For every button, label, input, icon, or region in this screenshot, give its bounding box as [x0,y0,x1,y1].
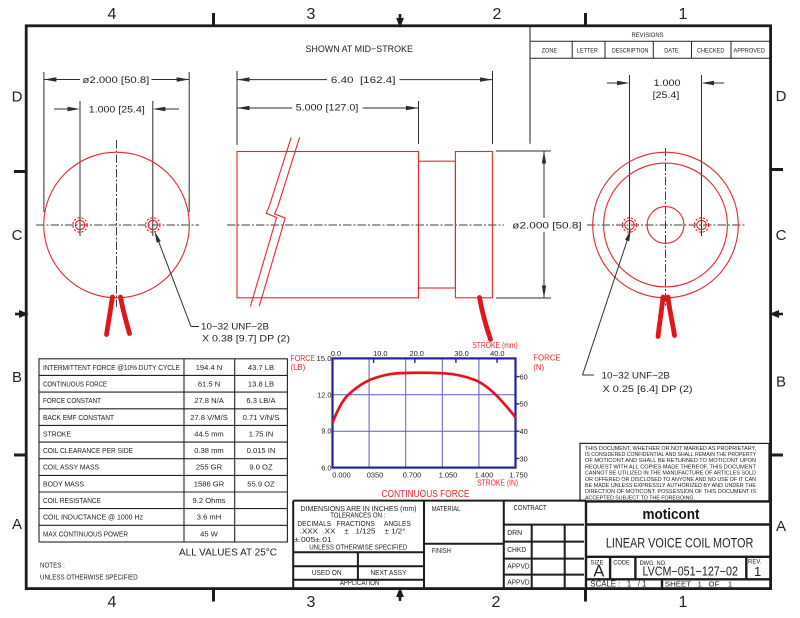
svg-text:CONTINUOUS FORCE: CONTINUOUS FORCE [382,489,470,500]
svg-text:1: 1 [679,6,688,23]
svg-text:3.6 mH: 3.6 mH [197,513,221,522]
svg-text:NEXT ASSY: NEXT ASSY [370,568,406,577]
svg-text:CONTINUOUS FORCE: CONTINUOUS FORCE [43,379,107,388]
svg-text:B: B [776,374,786,391]
svg-text:CODE: CODE [613,560,630,567]
svg-text:COIL ASSY MASS: COIL ASSY MASS [43,463,99,472]
svg-text:COIL INDUCTANCE @ 1000 Hz: COIL INDUCTANCE @ 1000 Hz [43,513,143,522]
svg-text:30.0: 30.0 [454,349,468,358]
svg-text:D: D [776,88,787,105]
svg-text:5.000 [127.0]: 5.000 [127.0] [296,103,359,113]
svg-text:FORCE: FORCE [533,354,560,363]
svg-text:12.0: 12.0 [317,391,331,400]
svg-text:[25.4]: [25.4] [653,90,680,100]
svg-text:1586 GR: 1586 GR [194,479,225,488]
svg-text:1: 1 [754,564,761,579]
svg-text:CHKD: CHKD [507,545,526,554]
svg-text:1.000: 1.000 [654,78,681,88]
svg-text:0.000: 0.000 [332,471,351,480]
svg-text:0.0: 0.0 [331,349,341,358]
svg-text:NOTES :: NOTES : [40,561,65,570]
svg-text:A: A [776,518,786,535]
svg-text:6.0: 6.0 [321,463,331,472]
svg-text:REQUEST WITH ALL COPIES MADE T: REQUEST WITH ALL COPIES MADE THEREOF. TH… [585,464,756,470]
svg-text:13.8 LB: 13.8 LB [248,379,274,388]
svg-text:DRN: DRN [507,528,522,537]
svg-text:SHOWN AT MID−STROKE: SHOWN AT MID−STROKE [305,44,413,54]
svg-text:4: 4 [108,594,117,611]
svg-text:27.8 V/M/S: 27.8 V/M/S [190,413,228,422]
svg-text:40: 40 [520,427,528,436]
svg-text:REVISIONS: REVISIONS [632,32,665,39]
svg-text:A: A [593,563,604,581]
svg-text:ALL VALUES AT 25°C: ALL VALUES AT 25°C [179,548,277,559]
svg-text:FORCE CONSTANT: FORCE CONSTANT [43,396,101,405]
svg-text:C: C [776,227,787,244]
svg-text:2: 2 [493,6,502,23]
svg-text:STROKE: STROKE [43,429,71,438]
svg-text:ø2.000 [50.8]: ø2.000 [50.8] [83,75,150,85]
svg-text:OR OFFERED OR DISCLOSED TO ANY: OR OFFERED OR DISCLOSED TO ANYONE AND NO… [585,477,756,483]
svg-text:APPROVED: APPROVED [733,48,765,55]
svg-text:SHEET 1 OF 1: SHEET 1 OF 1 [665,580,732,589]
svg-text:6.3 LB/A: 6.3 LB/A [246,396,276,405]
svg-text:1.000 [25.4]: 1.000 [25.4] [89,104,145,114]
svg-text:45 W: 45 W [200,529,219,538]
svg-text:0350: 0350 [367,471,383,480]
svg-text:BACK EMF CONSTANT: BACK EMF CONSTANT [43,413,114,422]
svg-text:FORCE: FORCE [291,354,316,363]
svg-text:61.5 N: 61.5 N [198,379,220,388]
svg-text:0.38 mm: 0.38 mm [194,446,224,455]
svg-text:LINEAR VOICE COIL MOTOR: LINEAR VOICE COIL MOTOR [606,536,754,551]
svg-text:STROKE (mm): STROKE (mm) [472,341,518,350]
svg-text:USED ON: USED ON [312,568,342,577]
svg-text:0.015 IN: 0.015 IN [247,446,276,455]
svg-text:MATERIAL: MATERIAL [432,504,461,513]
svg-text:4: 4 [108,6,117,23]
svg-text:194.4 N: 194.4 N [196,363,223,372]
svg-text:9.0: 9.0 [321,427,331,436]
svg-text:1.050: 1.050 [439,471,458,480]
svg-text:OF MOTICONT AND SHALL BE RETUR: OF MOTICONT AND SHALL BE RETURNED TO MOT… [585,458,756,464]
svg-text:A: A [12,516,22,533]
svg-text:APPLICATION: APPLICATION [340,578,379,587]
svg-text:2: 2 [492,594,501,611]
svg-text:COIL RESISTANCE: COIL RESISTANCE [43,496,101,505]
svg-text:DATE: DATE [664,48,679,55]
svg-text:DIRECTION OF MOTICONT. POSSESS: DIRECTION OF MOTICONT. POSSESSION OF THI… [585,489,756,495]
svg-text:CANNOT BE UTILIZED IN THE MANU: CANNOT BE UTILIZED IN THE MANUFACTURE OF… [585,471,756,477]
svg-text:STROKE (IN): STROKE (IN) [477,479,518,488]
svg-text:(N): (N) [533,363,544,372]
svg-text:20.0: 20.0 [410,349,424,358]
svg-text:APPVD: APPVD [507,561,530,570]
svg-text:1.75 IN: 1.75 IN [249,429,273,438]
svg-text:LETTER: LETTER [577,48,598,55]
svg-text:10−32 UNF−2B: 10−32 UNF−2B [201,321,269,331]
svg-text:0.700: 0.700 [403,471,422,480]
svg-text:CHECKED: CHECKED [697,48,725,55]
svg-text:moticont: moticont [643,507,700,523]
svg-text:1: 1 [679,594,688,611]
svg-text:ø2.000 [50.8]: ø2.000 [50.8] [512,220,581,230]
svg-text:40.0: 40.0 [490,349,504,358]
svg-text:50: 50 [520,400,528,409]
svg-text:DESCRIPTION: DESCRIPTION [612,48,649,55]
svg-text:(LB): (LB) [291,363,306,372]
svg-text:15.0: 15.0 [317,354,332,363]
svg-text:FINISH: FINISH [432,546,451,555]
svg-text:60: 60 [520,372,528,381]
svg-text:INTERMITTENT FORCE @10% DUTY C: INTERMITTENT FORCE @10% DUTY CYCLE [43,363,180,372]
svg-text:3: 3 [307,6,316,23]
svg-text:MAX CONTINUOUS POWER: MAX CONTINUOUS POWER [43,529,128,538]
svg-text:BE MADE UNLESS EXPRESSLY AUTHO: BE MADE UNLESS EXPRESSLY AUTHORIZED BY A… [585,483,756,489]
svg-text:UNLESS OTHERWISE SPECIFIED: UNLESS OTHERWISE SPECIFIED [40,573,138,582]
svg-text:X 0.38 [9.7] DP (2): X 0.38 [9.7] DP (2) [202,333,290,343]
svg-text:9.2 Ohms: 9.2 Ohms [193,496,226,505]
svg-text:6.40 [162.4]: 6.40 [162.4] [331,75,396,85]
svg-text:COIL CLEARANCE PER SIDE: COIL CLEARANCE PER SIDE [43,446,133,455]
svg-text:30: 30 [520,454,528,463]
svg-text:0.71 V/N/S: 0.71 V/N/S [243,413,280,422]
svg-text:44.5 mm: 44.5 mm [194,429,224,438]
svg-text:SCALE : 1 / 1: SCALE : 1 / 1 [590,580,646,589]
svg-text:10.0: 10.0 [373,349,387,358]
svg-text:43.7 LB: 43.7 LB [248,363,274,372]
svg-text:B: B [12,369,22,386]
svg-text:BODY MASS: BODY MASS [43,479,84,488]
svg-text:255 GR: 255 GR [196,463,223,472]
svg-text:ZONE: ZONE [542,48,558,55]
svg-text:THIS DOCUMENT, WHETHER OR NOT: THIS DOCUMENT, WHETHER OR NOT MARKED AS … [585,446,756,452]
svg-text:9.0 OZ: 9.0 OZ [249,463,273,472]
svg-text:IS CONSIDERED CONFIDENTIAL AND: IS CONSIDERED CONFIDENTIAL AND SHALL REM… [585,452,756,458]
svg-text:3: 3 [307,594,316,611]
svg-text:27.8 N/A: 27.8 N/A [194,396,224,405]
svg-text:LVCM−051−127−02: LVCM−051−127−02 [642,565,738,579]
svg-text:APPVD: APPVD [507,577,530,586]
svg-text:UNLESS OTHERWISE SPECIFIED: UNLESS OTHERWISE SPECIFIED [309,543,407,552]
svg-text:D: D [12,89,23,106]
svg-text:C: C [12,227,23,244]
svg-text:CONTRACT: CONTRACT [514,503,547,512]
svg-text:X 0.25 [6.4] DP (2): X 0.25 [6.4] DP (2) [603,384,693,394]
svg-text:55.9 OZ: 55.9 OZ [247,479,275,488]
svg-text:10−32 UNF−2B: 10−32 UNF−2B [602,370,671,380]
